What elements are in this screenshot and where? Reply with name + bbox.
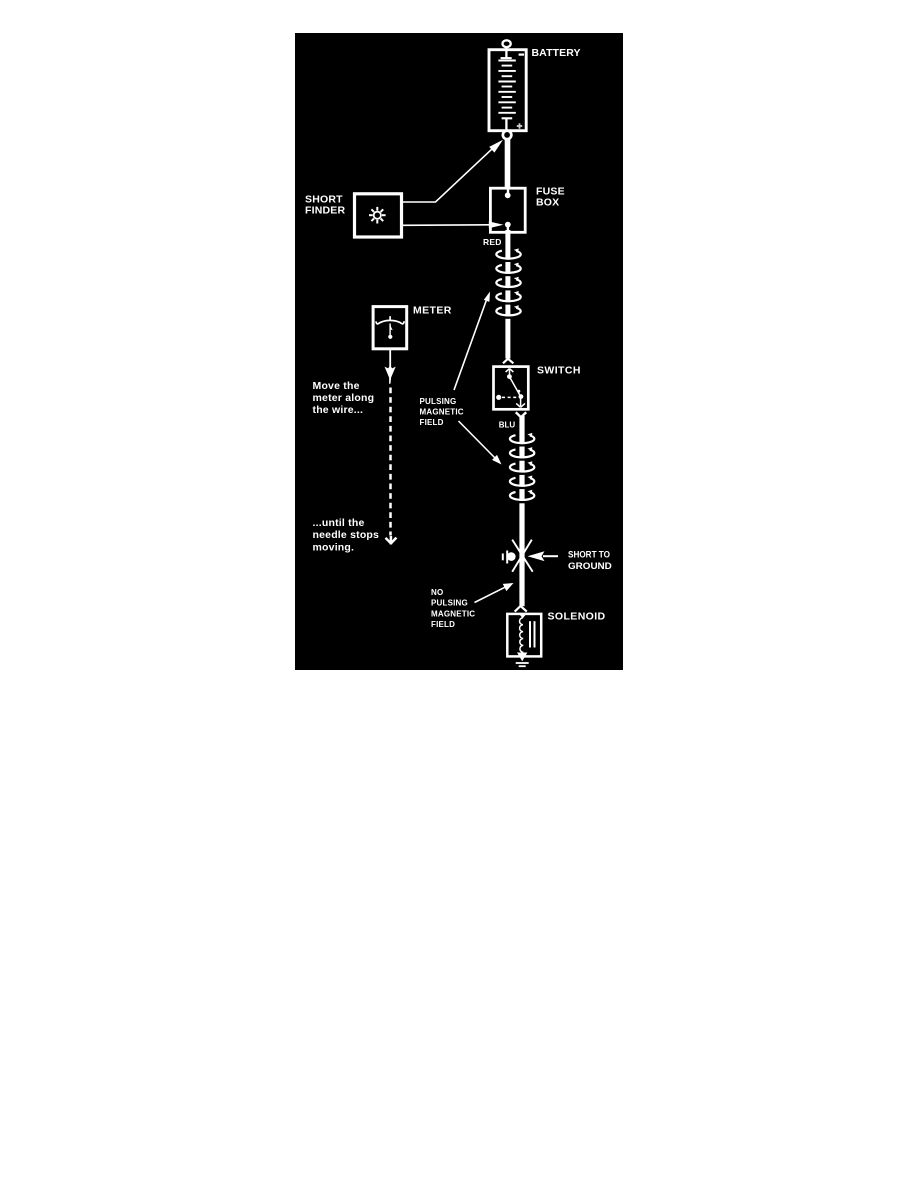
svg-text:PULSING: PULSING — [431, 599, 468, 608]
svg-text:BOX: BOX — [536, 197, 559, 209]
svg-text:moving.: moving. — [313, 541, 355, 553]
svg-text:METER: METER — [413, 305, 452, 317]
svg-text:the wire...: the wire... — [313, 404, 364, 416]
svg-text:GROUND: GROUND — [568, 561, 612, 572]
svg-text:meter along: meter along — [313, 392, 375, 404]
svg-text:FINDER: FINDER — [305, 204, 346, 216]
svg-text:MAGNETIC: MAGNETIC — [420, 407, 464, 416]
svg-text:SHORT TO: SHORT TO — [568, 549, 610, 560]
svg-text:BLU: BLU — [499, 421, 516, 430]
svg-text:PULSING: PULSING — [420, 397, 457, 406]
svg-text:needle stops: needle stops — [313, 529, 380, 541]
svg-text:FIELD: FIELD — [431, 620, 455, 629]
svg-text:RED: RED — [483, 237, 502, 247]
svg-text:Move the: Move the — [313, 380, 360, 392]
svg-text:SWITCH: SWITCH — [537, 364, 581, 376]
svg-text:...until the: ...until the — [313, 517, 365, 529]
svg-text:MAGNETIC: MAGNETIC — [431, 610, 475, 619]
svg-text:FUSE: FUSE — [536, 185, 565, 197]
svg-text:FIELD: FIELD — [420, 418, 444, 427]
svg-text:NO: NO — [431, 588, 443, 597]
svg-text:BATTERY: BATTERY — [532, 47, 581, 59]
svg-text:SOLENOID: SOLENOID — [548, 610, 606, 622]
